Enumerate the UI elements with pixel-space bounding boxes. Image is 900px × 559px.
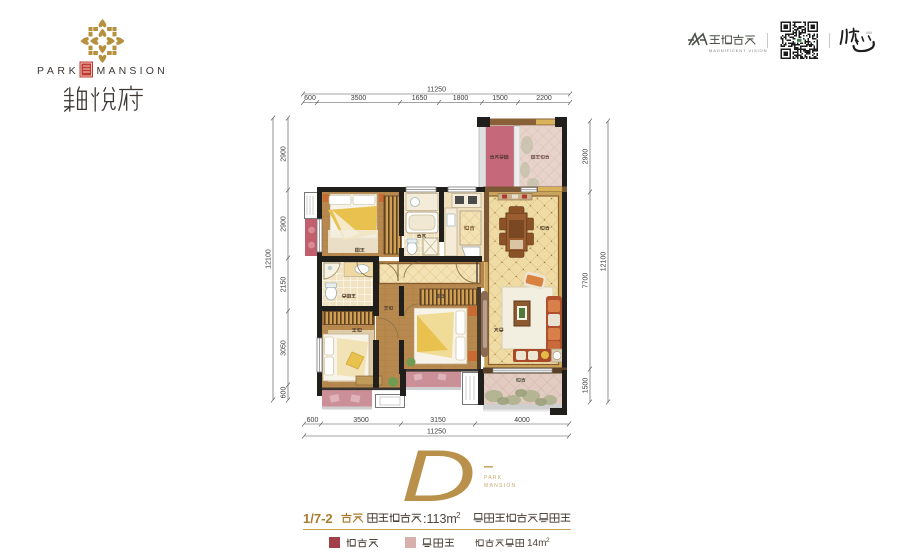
- svg-text:2900: 2900: [583, 149, 590, 165]
- svg-text:PARK: PARK: [37, 65, 79, 77]
- svg-text:600: 600: [307, 417, 319, 424]
- svg-text:12100: 12100: [266, 249, 273, 269]
- svg-text:2200: 2200: [536, 95, 552, 102]
- svg-text:MANSION: MANSION: [484, 483, 516, 489]
- svg-text:D: D: [401, 435, 476, 516]
- svg-text:600: 600: [281, 387, 288, 399]
- svg-text:3150: 3150: [430, 417, 446, 424]
- svg-text:14m: 14m: [527, 538, 546, 549]
- svg-text:1800: 1800: [453, 95, 469, 102]
- svg-text:3500: 3500: [353, 417, 369, 424]
- svg-text:2900: 2900: [281, 146, 288, 162]
- svg-text:2: 2: [546, 537, 550, 544]
- svg-text:3050: 3050: [281, 340, 288, 356]
- svg-text:2150: 2150: [281, 277, 288, 293]
- svg-text::113m: :113m: [423, 512, 457, 526]
- svg-text:1650: 1650: [412, 95, 428, 102]
- svg-text:1500: 1500: [583, 378, 590, 394]
- svg-text:MAGNIFICENT VISION: MAGNIFICENT VISION: [709, 48, 767, 53]
- svg-text:7700: 7700: [583, 273, 590, 289]
- svg-text:11250: 11250: [427, 87, 446, 94]
- svg-text:3500: 3500: [351, 95, 367, 102]
- svg-text:1/7-2: 1/7-2: [303, 511, 333, 526]
- svg-text:PARK: PARK: [484, 475, 502, 481]
- svg-text:MANSION: MANSION: [97, 65, 168, 77]
- svg-text:2: 2: [456, 511, 461, 520]
- svg-text:12100: 12100: [601, 252, 608, 272]
- svg-text:4000: 4000: [514, 417, 530, 424]
- svg-text:600: 600: [304, 95, 316, 102]
- svg-text:2900: 2900: [281, 216, 288, 232]
- svg-text:1500: 1500: [492, 95, 508, 102]
